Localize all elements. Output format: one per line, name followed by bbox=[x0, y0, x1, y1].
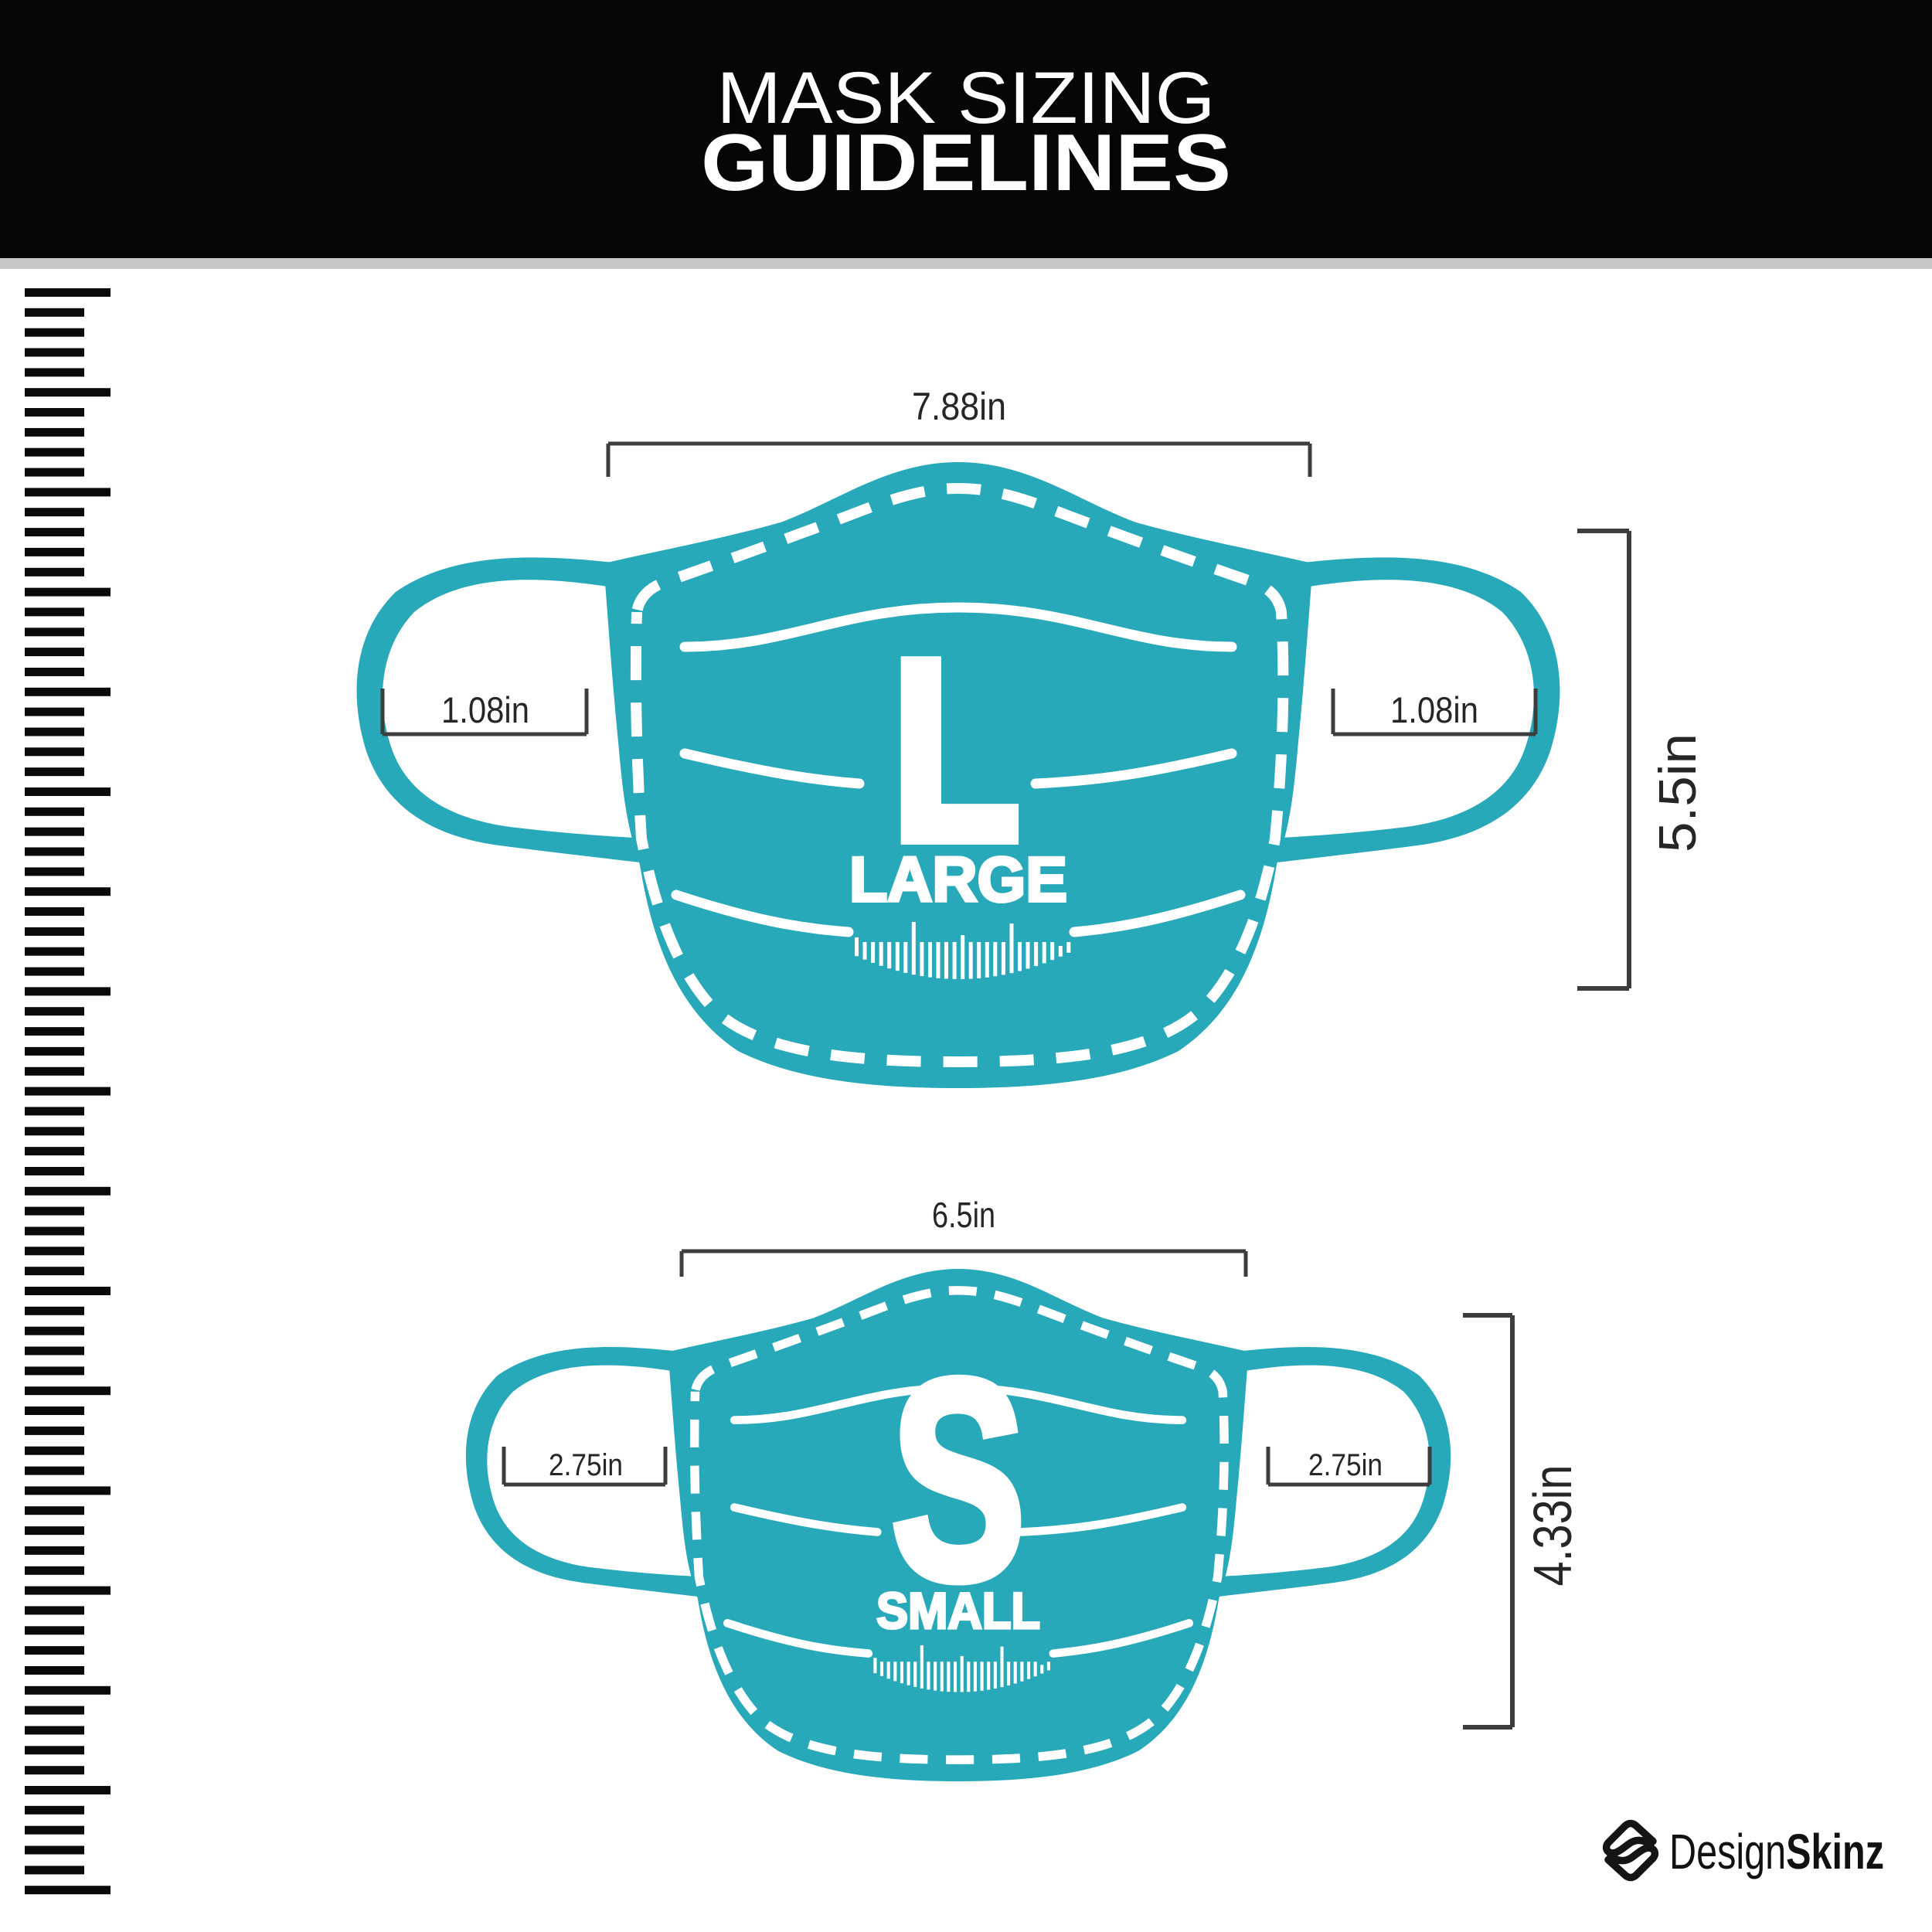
svg-text:5.5in: 5.5in bbox=[1648, 733, 1707, 852]
svg-text:GUIDELINES: GUIDELINES bbox=[701, 118, 1231, 208]
svg-text:2.75in: 2.75in bbox=[1308, 1448, 1383, 1482]
svg-text:2.75in: 2.75in bbox=[549, 1448, 623, 1482]
svg-text:1.08in: 1.08in bbox=[1390, 689, 1478, 730]
svg-text:4.33in: 4.33in bbox=[1522, 1465, 1583, 1587]
svg-text:6.5in: 6.5in bbox=[932, 1195, 995, 1235]
svg-text:LARGE: LARGE bbox=[849, 845, 1067, 915]
svg-text:DesignSkinz: DesignSkinz bbox=[1669, 1824, 1884, 1879]
svg-text:SMALL: SMALL bbox=[876, 1583, 1040, 1639]
svg-text:7.88in: 7.88in bbox=[912, 385, 1006, 428]
svg-text:1.08in: 1.08in bbox=[441, 689, 529, 730]
